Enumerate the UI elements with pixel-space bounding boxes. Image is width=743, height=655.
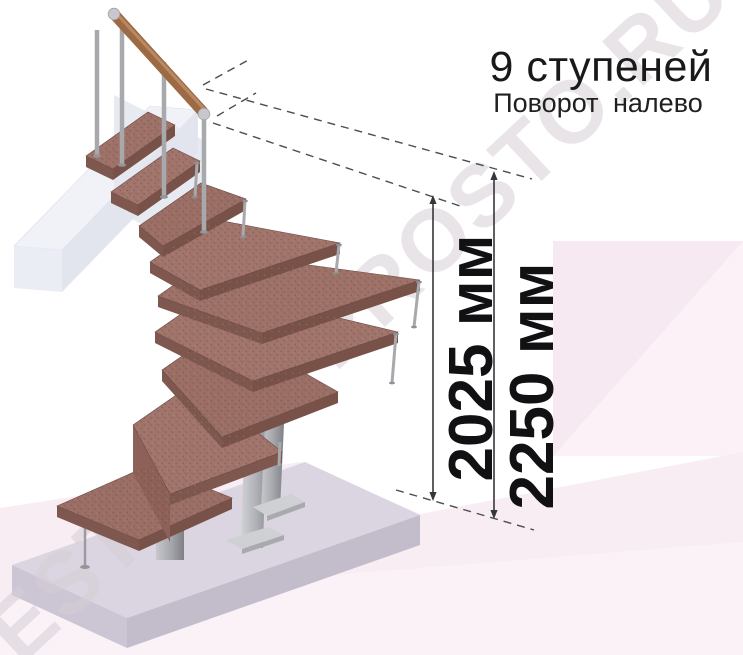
page-subtitle: Поворот налево [493, 88, 703, 118]
baluster-3-flange [160, 195, 168, 199]
baluster-2-flange [118, 163, 126, 167]
handrail-cap-top [108, 8, 120, 20]
step-1-leg-flange [80, 565, 90, 569]
end-post-flange [200, 230, 208, 234]
handrail-cap-bottom [198, 108, 210, 120]
dimension-label-2025: 2025 мм [437, 235, 506, 482]
beam-end-face [14, 246, 62, 292]
dimension-label-2250: 2250 мм [498, 263, 567, 510]
post-s8-s7 [195, 163, 197, 197]
title-block: 9 ступеней Поворот налево [490, 43, 713, 118]
baluster-1-flange [93, 154, 101, 158]
post-s7-s6 [243, 201, 245, 237]
post-s3-s2 [279, 442, 280, 466]
staircase-diagram: LESTNICY-PROSTO.RU [0, 0, 743, 655]
page-title: 9 ступеней [490, 43, 713, 91]
